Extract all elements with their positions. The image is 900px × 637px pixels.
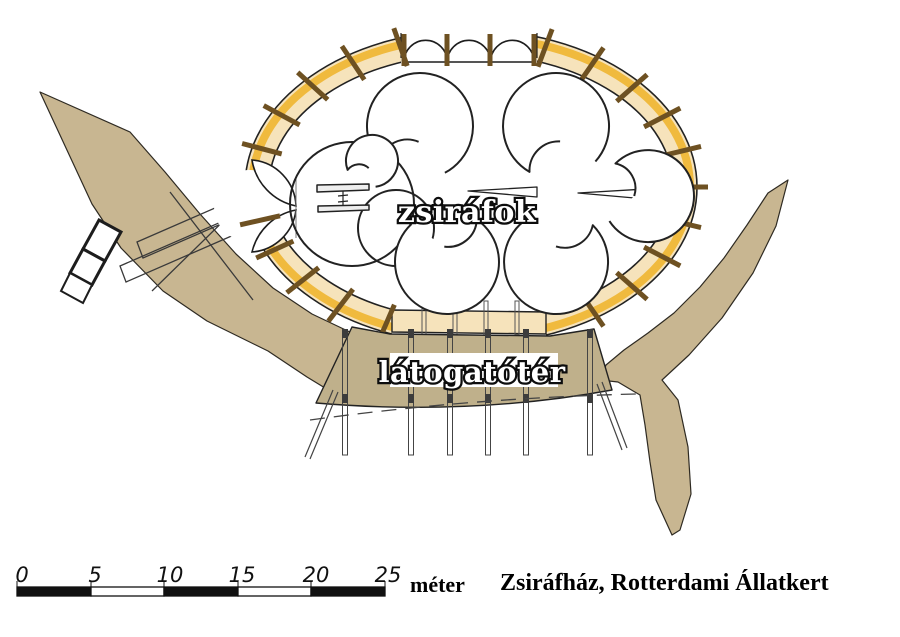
north-gate-cut <box>401 22 537 66</box>
service-building <box>61 220 121 303</box>
drawing-caption: Zsiráfház, Rotterdami Állatkert <box>500 570 829 596</box>
scale-tick-15: 15 <box>229 563 256 587</box>
column-cap <box>485 329 491 338</box>
scale-tick-0: 0 <box>15 563 28 587</box>
column-cap <box>587 329 593 338</box>
visitor-area-label: látogatótér <box>379 355 566 389</box>
scale-segment <box>238 587 311 596</box>
visitor-platform <box>305 327 636 459</box>
scale-unit: méter <box>410 572 465 597</box>
south-gate-band <box>392 310 546 334</box>
scale-tick-20: 20 <box>303 563 330 587</box>
feed-bar-left-2 <box>318 205 369 212</box>
column-cap <box>587 394 593 403</box>
column-cap <box>408 329 414 338</box>
feed-bar-left-1 <box>317 184 369 192</box>
column-cap <box>523 329 529 338</box>
scale-tick-5: 5 <box>88 563 101 587</box>
scale-tick-10: 10 <box>157 563 184 587</box>
column-cap <box>342 394 348 403</box>
scale-segment <box>164 587 238 596</box>
scale-bar-segments <box>17 581 385 596</box>
scale-segment <box>91 587 164 596</box>
scale-segment <box>311 587 385 596</box>
column-cap <box>408 394 414 403</box>
column-cap <box>342 329 348 338</box>
north-gate <box>401 22 537 66</box>
column-cap <box>447 394 453 403</box>
scale-bar: 0 5 10 15 20 25 méter <box>15 563 465 597</box>
scale-segment <box>17 587 91 596</box>
enclosure-label: zsiráfok <box>398 195 537 230</box>
scale-tick-25: 25 <box>375 563 402 587</box>
column-cap <box>447 329 453 338</box>
site-plan: zsiráfok látogatótér 0 5 10 15 20 25 mét… <box>0 0 900 637</box>
